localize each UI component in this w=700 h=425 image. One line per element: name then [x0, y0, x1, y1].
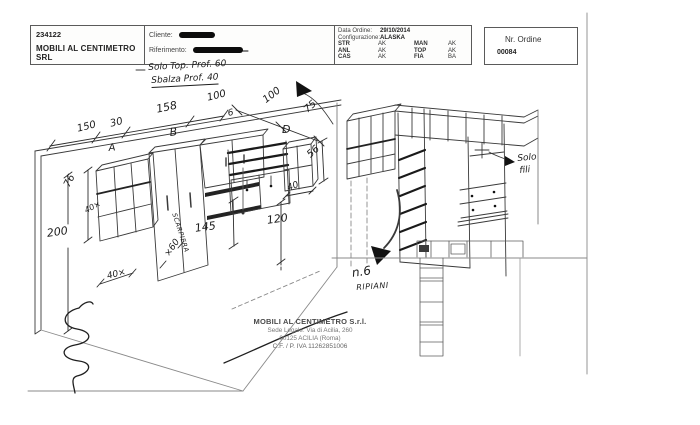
configurazione-value: ALASKA [380, 35, 405, 42]
finish-value: AK [378, 54, 414, 61]
note-solo-label: Solo [517, 152, 537, 164]
footer-company-block: MOBILI AL CENTIMETRO S.r.l. Sede Legale:… [222, 317, 398, 350]
header-config-cell: Data Ordine: 29/10/2014 Configurazione: … [335, 26, 471, 66]
finish-key: TOP [414, 48, 448, 55]
header-company-cell: 234122 MOBILI AL CENTIMETRO SRL [31, 26, 145, 64]
redacted-cliente-value [179, 32, 215, 38]
data-ordine-label: Data Ordine: [338, 28, 380, 35]
finish-value: AK [448, 48, 471, 55]
dim-6-label: 6 [227, 108, 234, 119]
unit-d-letter: D [282, 123, 290, 136]
header-client-cell: Cliente: Riferimento: [145, 26, 335, 64]
finish-row: CAS AK FIA BA [338, 54, 471, 61]
nr-ordine-value: 00084 [497, 49, 516, 56]
nr-ordine-label: Nr. Ordine [505, 35, 541, 44]
cubby-unit-a [96, 153, 158, 241]
finish-row: STR AK MAN AK [338, 41, 471, 48]
finish-key: ANL [338, 48, 378, 55]
finish-row: ANL AK TOP AK [338, 48, 471, 55]
unit-a-letter: A [108, 142, 116, 154]
cliente-label: Cliente: [149, 32, 173, 39]
finish-key: MAN [414, 41, 448, 48]
footer-address-line2: 00125 ACILIA (Roma) [222, 335, 398, 342]
wardrobe-b [149, 139, 208, 281]
ripiani-count-label: n.6 [351, 263, 372, 280]
footer-company-name: MOBILI AL CENTIMETRO S.r.l. [222, 317, 398, 326]
footer-address-line1: Sede Legale: Via di Acilia, 260 [222, 327, 398, 334]
riferimento-label: Riferimento: [149, 47, 187, 54]
scanned-order-document: 234122 MOBILI AL CENTIMETRO SRL Cliente:… [0, 0, 700, 425]
company-name: MOBILI AL CENTIMETRO SRL [36, 44, 144, 62]
signature-scribble [64, 302, 93, 393]
finish-key: CAS [338, 54, 378, 61]
finish-value: AK [378, 48, 414, 55]
finish-key: FIA [414, 54, 448, 61]
note-fili-label: fili [519, 165, 531, 176]
footer-vat-line: C.F. / P. IVA 11262851006 [222, 343, 398, 350]
data-ordine-value: 29/10/2014 [380, 28, 410, 35]
finish-value: AK [448, 41, 471, 48]
order-number-box: Nr. Ordine 00084 [484, 27, 578, 65]
finish-key: STR [338, 41, 378, 48]
right-sketch [347, 104, 538, 276]
unit-b-letter: B [169, 125, 178, 139]
order-code: 234122 [36, 30, 61, 39]
finish-value: AK [378, 41, 414, 48]
order-header-table: 234122 MOBILI AL CENTIMETRO SRL Cliente:… [30, 25, 472, 65]
left-sketch-wall [35, 100, 341, 334]
finish-value: BA [448, 54, 471, 61]
redacted-riferimento-value [193, 47, 243, 53]
configurazione-label: Configurazione: [338, 35, 380, 42]
